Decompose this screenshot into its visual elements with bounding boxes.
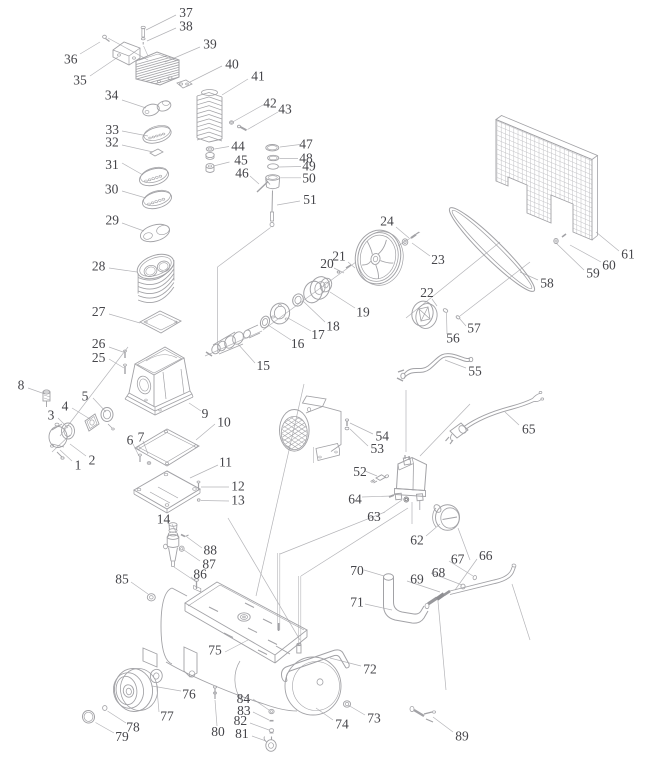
svg-text:32: 32 xyxy=(105,135,119,150)
svg-text:22: 22 xyxy=(420,285,434,300)
svg-text:66: 66 xyxy=(479,548,493,563)
svg-text:86: 86 xyxy=(193,567,207,582)
svg-text:35: 35 xyxy=(73,73,87,88)
svg-text:71: 71 xyxy=(350,595,364,610)
svg-text:85: 85 xyxy=(115,572,129,587)
svg-text:36: 36 xyxy=(64,52,78,67)
svg-text:15: 15 xyxy=(257,358,271,373)
svg-text:30: 30 xyxy=(105,182,119,197)
svg-text:69: 69 xyxy=(410,572,424,587)
svg-text:17: 17 xyxy=(311,327,325,342)
svg-text:5: 5 xyxy=(82,389,89,404)
svg-text:12: 12 xyxy=(231,479,245,494)
svg-text:21: 21 xyxy=(332,249,346,264)
svg-text:60: 60 xyxy=(602,258,616,273)
svg-text:1: 1 xyxy=(75,458,82,473)
svg-text:39: 39 xyxy=(203,37,217,52)
svg-text:63: 63 xyxy=(367,509,381,524)
svg-text:25: 25 xyxy=(92,350,106,365)
svg-text:77: 77 xyxy=(160,709,174,724)
svg-text:3: 3 xyxy=(48,408,55,423)
svg-text:72: 72 xyxy=(363,662,377,677)
svg-text:19: 19 xyxy=(356,305,370,320)
svg-text:52: 52 xyxy=(353,464,367,479)
svg-text:6: 6 xyxy=(127,433,134,448)
svg-text:51: 51 xyxy=(303,192,317,207)
svg-text:70: 70 xyxy=(350,563,364,578)
svg-text:55: 55 xyxy=(468,364,482,379)
svg-text:64: 64 xyxy=(348,492,362,507)
svg-text:43: 43 xyxy=(278,102,292,117)
svg-text:81: 81 xyxy=(235,726,249,741)
svg-text:76: 76 xyxy=(182,687,196,702)
svg-text:73: 73 xyxy=(367,711,381,726)
svg-text:62: 62 xyxy=(410,533,424,548)
svg-text:14: 14 xyxy=(157,512,171,527)
svg-text:56: 56 xyxy=(446,331,460,346)
svg-text:24: 24 xyxy=(380,214,394,229)
svg-text:7: 7 xyxy=(138,430,145,445)
svg-text:50: 50 xyxy=(302,171,316,186)
svg-text:8: 8 xyxy=(18,378,25,393)
svg-text:65: 65 xyxy=(522,422,536,437)
svg-text:58: 58 xyxy=(540,276,554,291)
svg-text:16: 16 xyxy=(291,336,305,351)
svg-text:13: 13 xyxy=(231,493,245,508)
svg-text:74: 74 xyxy=(335,717,349,732)
svg-text:67: 67 xyxy=(451,552,465,567)
svg-text:61: 61 xyxy=(621,247,635,262)
svg-text:26: 26 xyxy=(92,336,106,351)
svg-text:29: 29 xyxy=(105,213,119,228)
svg-text:42: 42 xyxy=(263,96,277,111)
svg-text:53: 53 xyxy=(371,441,385,456)
svg-text:89: 89 xyxy=(455,729,469,744)
svg-text:9: 9 xyxy=(202,406,209,421)
svg-text:27: 27 xyxy=(92,304,106,319)
svg-text:10: 10 xyxy=(217,415,231,430)
svg-text:31: 31 xyxy=(105,157,119,172)
svg-text:34: 34 xyxy=(105,88,119,103)
svg-text:40: 40 xyxy=(225,57,239,72)
svg-text:41: 41 xyxy=(251,69,265,84)
svg-text:38: 38 xyxy=(179,19,193,34)
svg-text:11: 11 xyxy=(219,455,232,470)
svg-text:80: 80 xyxy=(211,724,225,739)
svg-text:20: 20 xyxy=(320,256,334,271)
svg-text:2: 2 xyxy=(89,453,96,468)
svg-text:4: 4 xyxy=(62,399,69,414)
svg-text:18: 18 xyxy=(326,319,340,334)
svg-text:23: 23 xyxy=(431,252,445,267)
svg-text:68: 68 xyxy=(432,565,446,580)
svg-text:59: 59 xyxy=(586,266,600,281)
svg-text:44: 44 xyxy=(231,139,245,154)
svg-text:79: 79 xyxy=(115,729,129,744)
svg-text:47: 47 xyxy=(299,137,313,152)
svg-text:88: 88 xyxy=(203,543,217,558)
svg-text:28: 28 xyxy=(92,259,106,274)
svg-text:46: 46 xyxy=(235,166,249,181)
svg-text:57: 57 xyxy=(467,321,481,336)
svg-text:75: 75 xyxy=(208,643,222,658)
